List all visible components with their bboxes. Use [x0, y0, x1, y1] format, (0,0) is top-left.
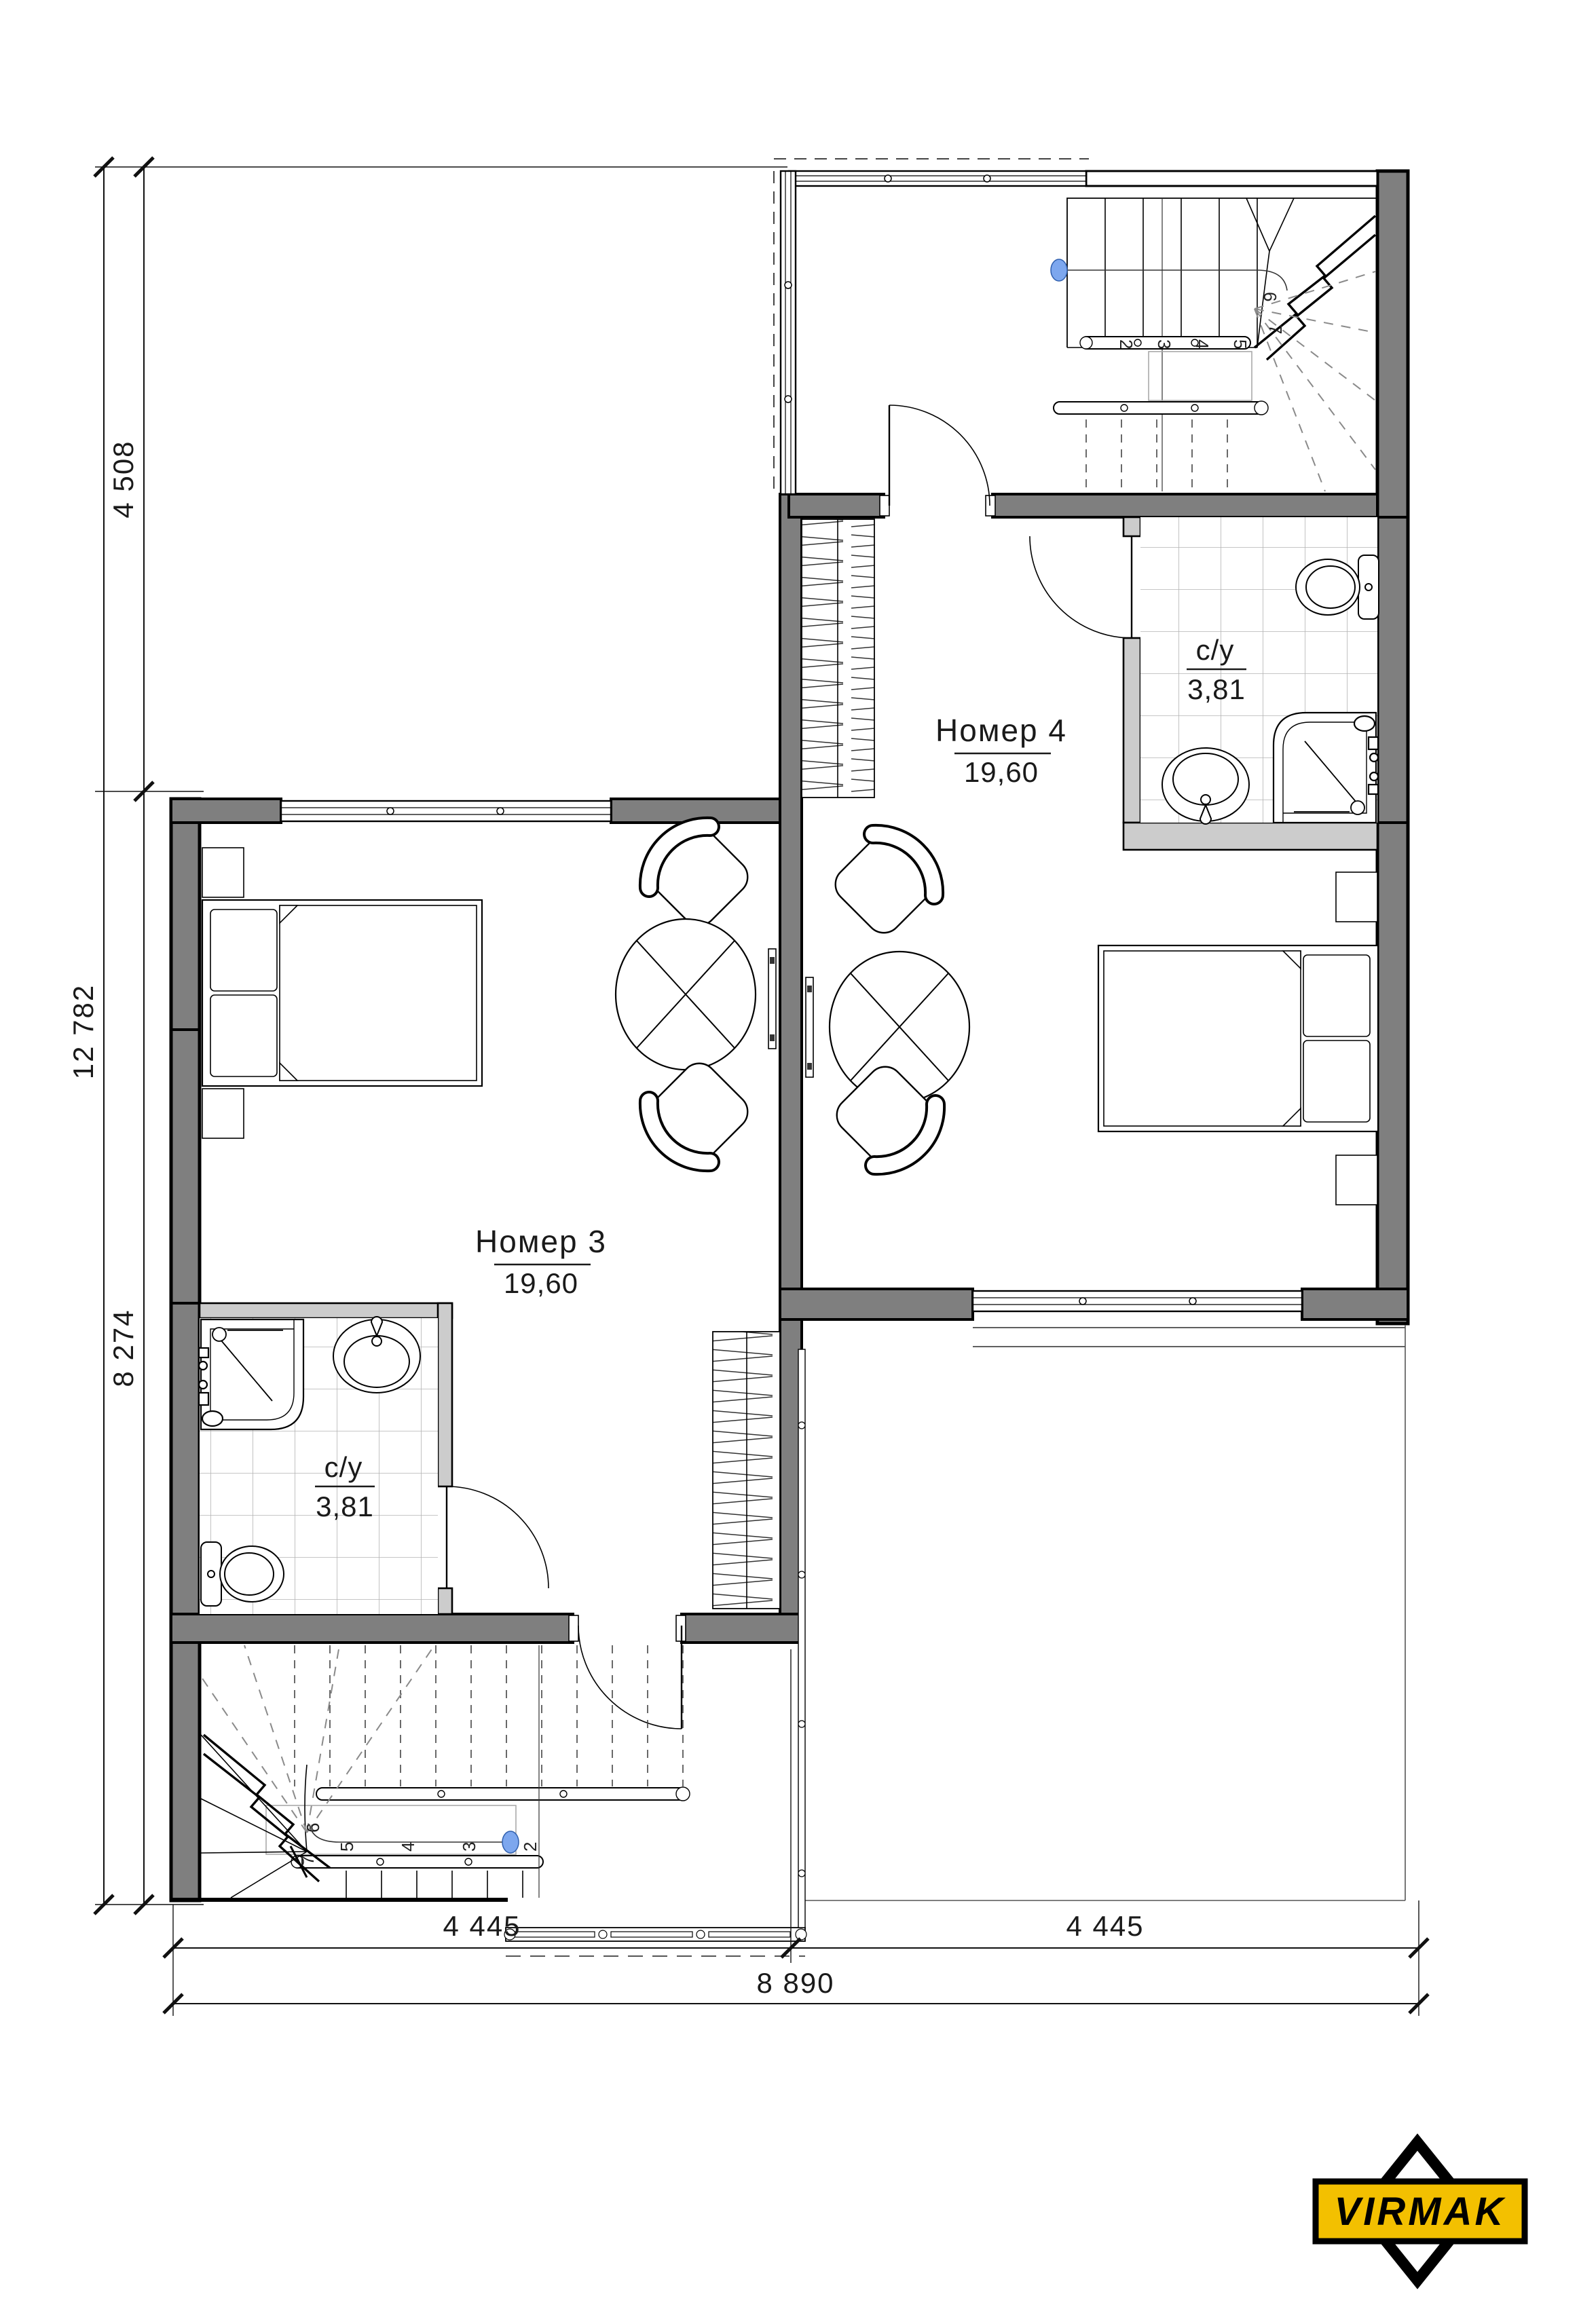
dim-bottom-total: 8 890 — [756, 1967, 834, 1999]
floor-below-outline — [805, 1325, 1405, 1900]
nightstand — [1336, 872, 1377, 922]
tv-icon — [806, 977, 813, 1077]
partition-bath4-south — [1123, 823, 1377, 850]
pillow — [1303, 955, 1370, 1036]
wall-hall-south-right — [992, 494, 1377, 517]
pillow — [210, 910, 277, 991]
door-bath3 — [447, 1486, 549, 1588]
partition-bath3-east-stub — [438, 1588, 452, 1614]
wall-room3-south-left — [171, 1614, 573, 1643]
shower-icon — [1274, 713, 1378, 823]
bathroom-4: с/у 3,81 — [1140, 517, 1379, 824]
svg-text:2: 2 — [520, 1842, 540, 1852]
room4-name: Номер 4 — [935, 713, 1067, 748]
door-bath4 — [1030, 536, 1132, 638]
stairs-bottom: 2 3 4 5 6 7 — [201, 1645, 690, 1898]
svg-text:2: 2 — [1116, 339, 1136, 349]
room4-area: 19,60 — [964, 756, 1039, 788]
floor-plan-sheet: с/у 3,81 — [0, 0, 1579, 2324]
nightstand — [1336, 1155, 1377, 1205]
svg-text:4: 4 — [1192, 339, 1212, 349]
armchair-icon — [644, 821, 755, 933]
stair-upper-flight-dashed — [1255, 271, 1375, 491]
svg-text:5: 5 — [337, 1842, 357, 1852]
wall-room3-north-left — [171, 799, 281, 823]
svg-text:3: 3 — [1154, 339, 1174, 349]
stair-treads — [1067, 198, 1294, 348]
wall-hall-south-left — [789, 494, 884, 517]
stair-start-dot — [502, 1831, 519, 1853]
stair-break-line — [1255, 216, 1375, 360]
stair-start-marker — [1051, 259, 1287, 290]
railing-east — [798, 1349, 805, 1928]
handrail — [1054, 401, 1268, 415]
railing-south — [504, 1928, 806, 1941]
toilet-icon — [1296, 555, 1379, 619]
handrail — [316, 1787, 690, 1801]
stair-upper-treads-dashed — [295, 1645, 683, 1786]
bathroom-3: с/у 3,81 — [199, 1317, 438, 1614]
bath3-area: 3,81 — [316, 1491, 374, 1522]
svg-text:4: 4 — [398, 1842, 418, 1852]
svg-text:6: 6 — [303, 1823, 323, 1833]
svg-text:7: 7 — [1265, 324, 1286, 334]
shower-icon — [199, 1319, 303, 1429]
dim-left-upper: 4 508 — [107, 440, 139, 518]
stairs-top: 2 3 4 5 6 7 — [1051, 198, 1377, 491]
svg-text:5: 5 — [1230, 339, 1250, 349]
armchair-icon — [644, 1056, 755, 1167]
room4-label: Номер 4 19,60 — [935, 713, 1067, 788]
nightstand — [202, 848, 244, 897]
pillow — [210, 995, 277, 1076]
virmak-logo: VIRMAK — [1316, 2142, 1525, 2281]
door-room3-to-hall — [569, 1615, 686, 1729]
stair-start-dot — [1051, 259, 1067, 281]
partition-bath3-east — [438, 1303, 452, 1486]
window-hall-west — [781, 171, 796, 494]
wardrobe-icon — [802, 519, 874, 798]
wall-east — [1377, 171, 1408, 1324]
tv-icon — [768, 949, 776, 1049]
dimension-lines-left — [104, 167, 144, 1905]
nightstand — [202, 1089, 244, 1138]
wall-room4-south-left — [780, 1289, 973, 1319]
partition-bath3-north — [200, 1303, 452, 1318]
pillow — [1303, 1041, 1370, 1122]
bath4-area: 3,81 — [1187, 673, 1246, 705]
logo-text: VIRMAK — [1335, 2190, 1506, 2234]
wall-room4-south-right — [1302, 1289, 1408, 1319]
svg-text:7: 7 — [297, 1856, 318, 1865]
floor-plan-drawing: с/у 3,81 — [0, 0, 1579, 2324]
stair-lower-treads-dashed — [1086, 419, 1227, 491]
bed — [202, 848, 482, 1138]
stair-landing — [1149, 352, 1252, 400]
wall-hall-north-thin — [1086, 171, 1377, 186]
window-room3-north — [281, 801, 611, 821]
partition-bath4-west-stub — [1123, 517, 1140, 536]
wardrobe-icon — [713, 1332, 780, 1609]
bed — [1098, 872, 1378, 1205]
bath3-name: с/у — [324, 1451, 363, 1483]
partition-bath4-west — [1123, 638, 1140, 823]
wall-west — [171, 799, 200, 1900]
armchair-icon — [828, 829, 940, 940]
stair-treads — [201, 1735, 523, 1898]
room3-label: Номер 3 19,60 — [475, 1224, 607, 1299]
room3-area: 19,60 — [504, 1267, 578, 1299]
dim-left-total: 12 782 — [67, 984, 99, 1079]
room3-name: Номер 3 — [475, 1224, 607, 1259]
door-hall-to-room4 — [880, 405, 995, 516]
dim-bottom-right: 4 445 — [1066, 1910, 1144, 1942]
svg-text:3: 3 — [459, 1842, 479, 1852]
roof-overhang-dashed — [774, 159, 1089, 493]
dim-left-lower: 8 274 — [107, 1309, 139, 1387]
stair-upper-flight-dashed — [201, 1645, 434, 1833]
dim-bottom-left: 4 445 — [443, 1910, 521, 1942]
window-hall-north — [789, 171, 1086, 186]
svg-text:6: 6 — [1260, 292, 1280, 301]
table-icon — [616, 919, 756, 1070]
bath4-name: с/у — [1196, 634, 1235, 666]
wall-room3-south-right — [682, 1614, 802, 1643]
toilet-icon — [201, 1542, 284, 1606]
